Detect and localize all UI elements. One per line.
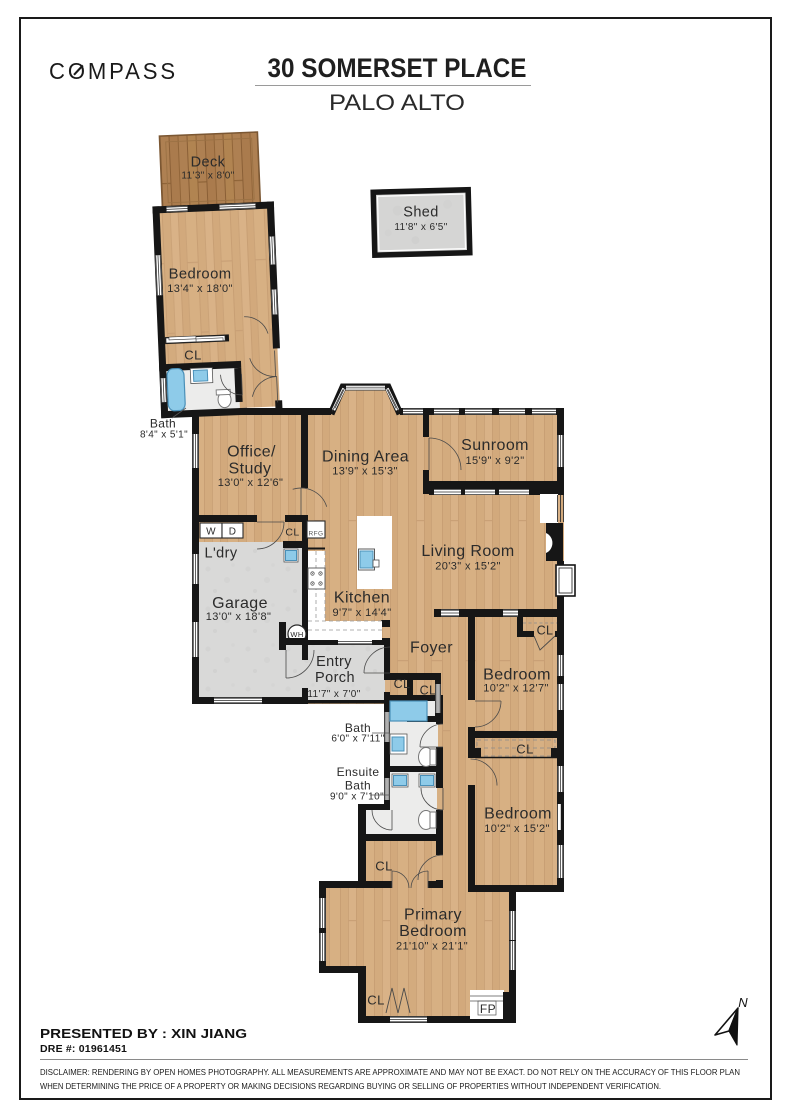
svg-text:Bedroom: Bedroom [484,806,552,823]
svg-text:DISCLAIMER: RENDERING BY OPEN: DISCLAIMER: RENDERING BY OPEN HOMES PHOT… [40,1068,740,1077]
svg-text:CL: CL [516,742,533,757]
svg-text:CL: CL [367,993,384,1008]
svg-text:Bath: Bath [345,779,371,793]
svg-text:Office/: Office/ [227,444,276,461]
svg-text:COMPASS: COMPASS [49,58,178,84]
svg-text:D: D [229,527,237,538]
svg-text:Dining Area: Dining Area [322,449,409,466]
svg-text:11'7" x 7'0": 11'7" x 7'0" [307,689,360,700]
svg-text:11'3" x 8'0": 11'3" x 8'0" [181,171,234,182]
svg-text:Ensuite: Ensuite [337,765,380,779]
svg-text:10'2" x 15'2": 10'2" x 15'2" [484,823,550,835]
svg-text:PALO ALTO: PALO ALTO [329,90,465,115]
svg-text:Study: Study [229,461,272,478]
svg-text:Deck: Deck [191,155,226,171]
svg-text:CL: CL [285,527,299,539]
svg-text:10'2" x 12'7": 10'2" x 12'7" [483,683,549,695]
svg-text:Foyer: Foyer [410,640,453,657]
svg-text:9'7" x 14'4": 9'7" x 14'4" [332,607,391,619]
svg-text:Bedroom: Bedroom [483,667,551,684]
svg-text:15'9" x 9'2": 15'9" x 9'2" [465,455,524,467]
svg-text:Shed: Shed [403,205,438,221]
svg-text:Porch: Porch [315,670,355,686]
svg-text:Bath: Bath [150,417,176,431]
svg-text:Kitchen: Kitchen [334,590,390,607]
svg-text:13'4" x 18'0": 13'4" x 18'0" [167,283,233,295]
svg-text:13'0" x 18'8": 13'0" x 18'8" [206,611,272,623]
svg-text:9'0" x 7'10": 9'0" x 7'10" [330,792,384,803]
svg-text:30 SOMERSET PLACE: 30 SOMERSET PLACE [268,53,527,83]
svg-text:RFG: RFG [309,531,324,538]
svg-text:W: W [206,527,216,538]
svg-text:Garage: Garage [212,595,268,612]
svg-text:WHEN DETERMINING THE PRICE OF: WHEN DETERMINING THE PRICE OF A PROPERTY… [40,1082,661,1091]
svg-text:20'3" x 15'2": 20'3" x 15'2" [435,561,501,573]
svg-text:WH: WH [290,630,303,639]
svg-text:Living Room: Living Room [421,543,514,560]
svg-text:CL: CL [375,859,392,874]
svg-text:PRESENTED BY : XIN JIANG: PRESENTED BY : XIN JIANG [40,1026,247,1041]
svg-text:Bedroom: Bedroom [169,267,232,283]
svg-text:L'dry: L'dry [205,546,238,562]
svg-text:CL: CL [537,624,554,638]
svg-text:21'10" x 21'1": 21'10" x 21'1" [396,941,468,953]
svg-text:FP: FP [480,1002,496,1016]
svg-text:Entry: Entry [316,654,352,670]
svg-text:8'4" x 5'1": 8'4" x 5'1" [140,430,188,441]
svg-text:Primary: Primary [404,907,462,924]
svg-text:13'9" x 15'3": 13'9" x 15'3" [332,466,398,478]
svg-text:CL: CL [184,348,201,363]
svg-text:N: N [738,995,748,1010]
svg-text:Bedroom: Bedroom [399,923,467,940]
svg-text:13'0" x 12'6": 13'0" x 12'6" [218,477,284,489]
svg-text:6'0" x 7'11": 6'0" x 7'11" [331,734,384,745]
svg-text:11'8" x 6'5": 11'8" x 6'5" [394,222,447,233]
svg-text:CL: CL [394,677,411,691]
svg-text:Sunroom: Sunroom [461,437,529,454]
svg-text:CL: CL [420,684,437,698]
svg-text:DRE #: 01961451: DRE #: 01961451 [40,1043,127,1055]
